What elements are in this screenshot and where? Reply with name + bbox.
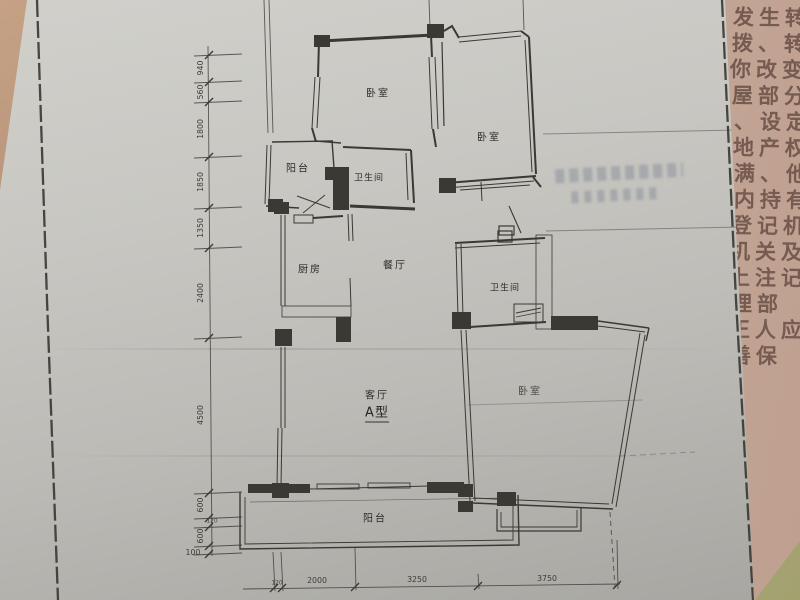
- room-label-bedroom-top-right: 卧室: [477, 129, 501, 144]
- room-label-living: 客厅: [365, 387, 389, 402]
- room-label-balcony-bottom: 阳台: [363, 510, 387, 525]
- room-label-bathroom-top: 卫生间: [354, 171, 384, 184]
- dim-left-1800: 1800: [197, 119, 206, 139]
- room-label-bedroom-bottom: 卧室: [518, 383, 542, 398]
- dim-left-940: 940: [197, 61, 206, 76]
- room-label-bathroom-middle: 卫生间: [490, 281, 520, 294]
- stamp-row: [571, 187, 661, 204]
- photographed-floorplan-page: 卧室 卧室 阳台 卫生间 厨房 餐厅 卫生间 客厅 卧室 阳台 A型 940 5…: [0, 0, 800, 600]
- dim-bottom-3250: 3250: [407, 576, 427, 585]
- dim-bottom-3750: 3750: [537, 575, 557, 584]
- room-label-bedroom-top-left: 卧室: [366, 85, 390, 100]
- dim-left-4500: 4500: [197, 405, 206, 425]
- faint-stamp: [555, 163, 685, 214]
- unit-type-label: A型: [365, 402, 389, 423]
- dim-left-600b: 600: [197, 529, 206, 544]
- dim-left-600a: 600: [197, 498, 206, 513]
- room-label-balcony-top: 阳台: [286, 160, 310, 175]
- room-label-dining: 餐厅: [383, 257, 407, 272]
- dim-bottom-2000: 2000: [307, 577, 327, 586]
- floorplan-drawing: [0, 0, 800, 600]
- walls: [240, 24, 649, 549]
- dim-left-1850: 1850: [197, 172, 206, 192]
- dim-bottom-120: 120: [271, 580, 282, 586]
- page-border-lines: [37, 0, 753, 600]
- dim-left-100: 100: [186, 549, 201, 558]
- dim-left-1350: 1350: [197, 218, 206, 238]
- dim-left-2400: 2400: [197, 283, 206, 303]
- dim-left-560: 560: [197, 85, 206, 100]
- dim-left-120: 120: [206, 518, 217, 524]
- room-label-kitchen: 厨房: [298, 261, 322, 276]
